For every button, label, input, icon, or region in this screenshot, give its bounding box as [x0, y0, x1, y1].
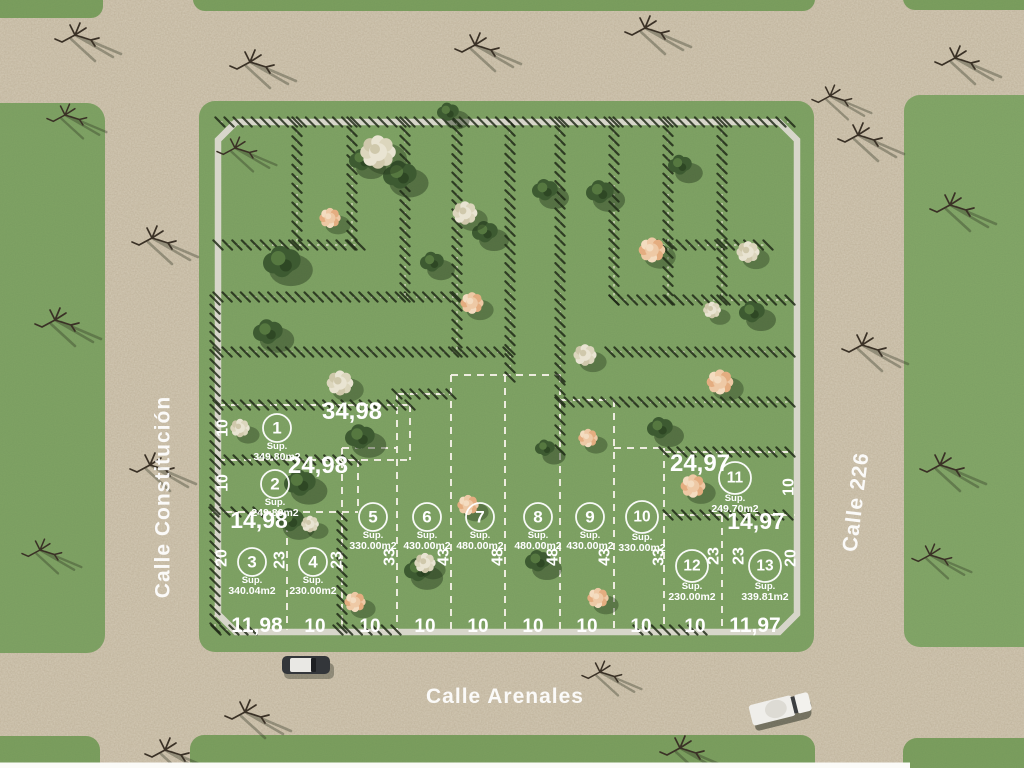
tree-canopy [351, 428, 362, 439]
dim-side-depth: 20 [214, 549, 231, 567]
dim-bottom-width: 10 [467, 616, 488, 637]
dim-frontage: 14,98 [230, 507, 288, 533]
dim-frontage: 11,97 [729, 614, 780, 637]
tree-canopy [467, 298, 474, 305]
street-label-constitucion: Calle Constitución [152, 396, 175, 598]
dim-frontage: 24,98 [288, 452, 348, 479]
dim-side-depth: 43 [436, 548, 453, 566]
tree-canopy [592, 184, 603, 195]
tree-canopy [425, 255, 434, 264]
dim-frontage: 34,98 [322, 398, 382, 425]
dim-side-depth: 23 [329, 551, 346, 569]
tree-canopy [580, 350, 587, 357]
tree-canopy [350, 597, 356, 603]
dim-side-depth: 23 [706, 547, 723, 565]
dim-side-depth: 48 [490, 548, 507, 566]
lot-12-number: 12 [683, 558, 700, 575]
street-label-arenales: Calle Arenales [426, 685, 584, 708]
lot-3-number: 3 [247, 553, 256, 572]
tree-canopy [687, 480, 694, 487]
dim-frontage: 11,98 [231, 614, 283, 637]
dim-side-depth: 33 [382, 548, 399, 566]
tree-canopy [259, 323, 270, 334]
tree-canopy [236, 424, 242, 430]
tree-canopy [708, 306, 713, 311]
tree-canopy [463, 500, 469, 506]
dim-bottom-width: 10 [576, 616, 597, 637]
lot-3-area: 340.04m2 [228, 585, 275, 597]
dim-bottom-width: 10 [304, 616, 325, 637]
tree-canopy [646, 244, 654, 252]
tree-canopy [714, 376, 722, 384]
dim-bottom-width: 10 [630, 616, 651, 637]
dim-side-depth: 10 [215, 474, 232, 492]
dim-side-depth: 23 [272, 551, 289, 569]
dim-side-depth: 20 [783, 549, 800, 567]
dim-side-depth: 23 [731, 547, 748, 565]
tree-canopy [530, 553, 540, 563]
car [282, 656, 334, 679]
tree-canopy [539, 442, 547, 450]
tree-canopy [537, 182, 547, 192]
lot-5-number: 5 [368, 508, 377, 527]
car-roof [290, 658, 314, 672]
tree-canopy [370, 144, 380, 154]
tree-canopy [306, 520, 311, 525]
tree-canopy [325, 213, 331, 219]
site-plan-image: 1Sup.349.80m22Sup.249.80m23Sup.340.04m24… [0, 0, 1024, 768]
lot-6-number: 6 [422, 508, 431, 527]
dim-frontage: 14,97 [727, 508, 785, 534]
tree-canopy [442, 106, 450, 114]
dim-bottom-width: 10 [414, 616, 435, 637]
plan-bottom-margin [0, 763, 910, 768]
lot-13-number: 13 [756, 558, 774, 575]
lot-9-number: 9 [585, 508, 594, 527]
tree-canopy [744, 304, 754, 314]
dim-bottom-width: 10 [522, 616, 543, 637]
lot-12-area: 230.00m2 [668, 591, 715, 603]
tree-canopy [652, 420, 662, 430]
lot-13-area: 339.81m2 [741, 591, 788, 603]
tree-canopy [334, 377, 342, 385]
lot-7-number: 7 [475, 508, 484, 527]
lot-1-number: 1 [272, 419, 281, 438]
dim-side-depth: 33 [651, 548, 668, 566]
car-windshield [311, 658, 316, 672]
site-plan-canvas: 1Sup.349.80m22Sup.249.80m23Sup.340.04m24… [0, 0, 1024, 768]
tree-canopy [673, 158, 682, 167]
lot-4-area: 230.00m2 [289, 585, 336, 597]
dim-side-depth: 48 [545, 548, 562, 566]
tree-canopy [593, 593, 599, 599]
dim-frontage: 24,97 [670, 450, 730, 477]
dim-side-depth: 10 [215, 419, 232, 437]
lot-8-number: 8 [533, 508, 542, 527]
tree-canopy [459, 207, 466, 214]
lot-2-number: 2 [270, 475, 279, 494]
tree-canopy [420, 558, 426, 564]
dim-bottom-width: 10 [359, 616, 380, 637]
tree-canopy [584, 434, 590, 440]
tree-canopy [743, 247, 750, 254]
lot-10-number: 10 [633, 509, 650, 526]
dim-bottom-width: 10 [684, 616, 705, 637]
tree-canopy [271, 251, 285, 265]
dim-side-depth: 43 [597, 548, 614, 566]
dim-side-depth: 10 [781, 478, 798, 496]
lot-4-number: 4 [308, 553, 318, 572]
